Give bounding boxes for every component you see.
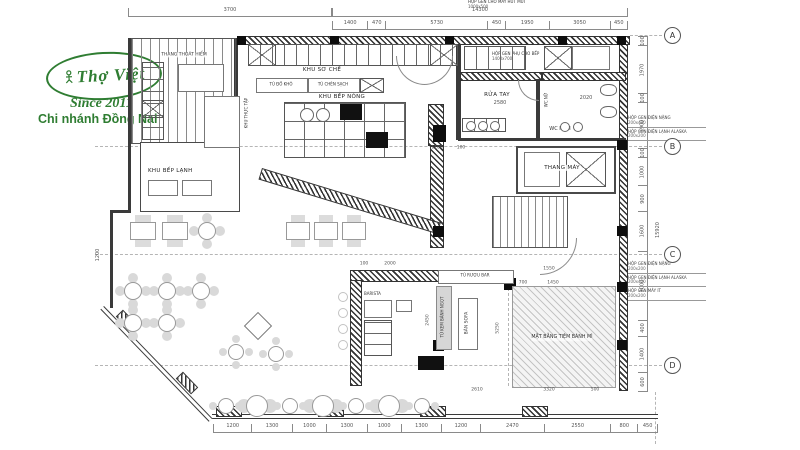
dim-left-side: 1200	[96, 249, 102, 262]
cold-equipment	[182, 180, 212, 196]
grid-bubble-c: C	[664, 246, 681, 263]
dim-top-segments: 1400470573045019503050450	[332, 21, 628, 30]
range-unit	[366, 132, 388, 148]
logo-since: Since 2011	[70, 96, 133, 112]
sink	[466, 121, 476, 131]
dry-cabinet-label: TỦ ĐỒ KHÔ	[270, 83, 293, 88]
dining-table-square	[130, 222, 156, 240]
wine-cabinet-label: TỦ RƯỢU BAR	[461, 274, 490, 279]
escape-stairs-label: THANG THOÁT HIỂM	[161, 52, 206, 57]
sofa-table-label: BÀN SOFA	[464, 312, 469, 335]
dining-table-round	[192, 282, 210, 300]
floorplan-canvas: Thợ Việt Since 2011 Chi nhánh Đồng Nai A…	[0, 0, 800, 450]
dining-table-round	[378, 395, 400, 417]
cabinet-unit	[360, 78, 384, 93]
work-table	[204, 96, 240, 148]
cold-equipment	[148, 180, 178, 196]
dim-segment: 450	[610, 21, 629, 30]
dining-table-round	[282, 398, 298, 414]
handyman-icon	[62, 68, 75, 88]
dining-table-diamond	[244, 312, 272, 340]
banh-mi-label: MẶT BẰNG TIỆM BÁNH MÌ	[531, 335, 592, 341]
handwash-label: RỬA TAY	[484, 92, 510, 98]
toilet	[600, 106, 617, 118]
dim-segment: 400	[638, 320, 647, 335]
door-arc	[424, 56, 453, 85]
dim-1450: 1450	[547, 280, 558, 285]
dim-wc: 2020	[580, 96, 593, 102]
service-counter	[572, 46, 610, 70]
dining-table-square	[286, 222, 310, 240]
column	[433, 226, 444, 237]
bar-unit	[396, 300, 412, 312]
training-area-label: KHU THỰC TẬP	[245, 98, 250, 128]
dim-segment: 1200	[441, 424, 479, 433]
column	[558, 36, 567, 45]
dim-segment: 3700	[128, 8, 332, 17]
bar-stool	[338, 340, 348, 350]
dim-segment: 470	[367, 21, 385, 30]
dining-table-round	[158, 282, 176, 300]
dim-segment: 5730	[385, 21, 487, 30]
wall-right	[619, 44, 628, 391]
hood-unit	[544, 46, 572, 70]
dim-segment: 1300	[251, 424, 291, 433]
cold-kitchen-room	[140, 142, 240, 212]
dim-segment: 1300	[326, 424, 366, 433]
annotation-group-c: HỘP GEN ĐIỆN NẶNG 200x200 HỘP GEN ĐIỆN L…	[628, 262, 706, 303]
dim-segment: 1970	[638, 45, 647, 93]
urinal	[560, 122, 570, 132]
dim-right-overall: 15920	[656, 222, 662, 238]
dim-segment: 1000	[638, 157, 647, 185]
dim-2450: 2450	[425, 314, 430, 325]
elevator-label: THANG MÁY	[544, 165, 580, 171]
cold-kitchen-label: KHU BẾP LẠNH	[148, 168, 193, 174]
dim-segment: 1200	[213, 424, 251, 433]
urinal	[573, 122, 583, 132]
wall-left-joint	[110, 210, 131, 213]
dining-table-square	[162, 222, 188, 240]
dim-ruatay: 2580	[494, 101, 507, 107]
column	[433, 125, 446, 142]
door-arc	[396, 56, 425, 85]
wall-diagonal	[100, 306, 212, 422]
dining-table-round	[198, 222, 216, 240]
column	[617, 36, 626, 45]
boundary-dash-1	[508, 278, 509, 386]
grid-bubble-a: A	[664, 27, 681, 44]
bar-wall-top	[350, 270, 440, 282]
dim-1550: 1550	[543, 266, 554, 271]
dim-segment: 1000	[367, 424, 401, 433]
dim-500: 500	[591, 387, 600, 392]
dining-table-round	[158, 314, 176, 332]
dim-segment: 2470	[480, 424, 544, 433]
column	[617, 226, 627, 236]
dining-table-round	[228, 344, 244, 360]
dim-100: 100	[457, 145, 466, 150]
wall-service-bottom	[458, 138, 626, 141]
gen-label: HỘP GEN ĐIỆN NẶNG 200x400	[628, 116, 706, 128]
dining-table-round	[348, 398, 364, 414]
dim-right-segments: 1001970100190010010009001600300040014006…	[638, 36, 648, 392]
dim-1100: 1100	[431, 145, 442, 150]
dim-segment: 1300	[401, 424, 441, 433]
clean-dish-cabinet-label: TỦ CHÉN SẠCH	[318, 83, 348, 88]
dim-segment: 100	[638, 93, 647, 102]
dim-bottom-segments: 1200130010001300100013001200247025508004…	[213, 424, 658, 433]
dining-table-square	[314, 222, 338, 240]
dim-bar-2000: 2000	[384, 261, 395, 266]
grid-bubble-d: D	[664, 357, 681, 374]
annotation-hut-mui: HỘP GEN CHO MÁY HÚT MÙI 1000x500	[468, 0, 525, 9]
dining-table-round	[246, 395, 268, 417]
bar-equipment	[364, 320, 392, 356]
gen-label: HỘP GEN MÁY IT 200x200	[628, 289, 706, 301]
dim-top-overall-left: 3700	[128, 8, 332, 17]
bar-wall-left	[350, 280, 362, 386]
dining-table-round	[124, 314, 142, 332]
dining-table-round	[414, 398, 430, 414]
prep-area-label: KHU SƠ CHẾ	[303, 67, 341, 73]
wc-nu-label: WC NỮ	[545, 93, 550, 107]
storage-table	[178, 64, 224, 92]
counter-unit	[248, 44, 276, 66]
dining-table-square	[342, 222, 366, 240]
dining-table-round	[312, 395, 334, 417]
dim-segment: 1400	[332, 21, 367, 30]
column	[617, 282, 627, 292]
column	[617, 140, 627, 150]
bar-stool	[338, 324, 348, 334]
sink-unit	[142, 100, 164, 118]
burner	[300, 108, 314, 122]
wall-left-lower	[110, 210, 113, 308]
bar-stool	[338, 292, 348, 302]
dim-segment: 600	[638, 372, 647, 392]
dim-segment: 1000	[292, 424, 326, 433]
hot-kitchen-label: KHU BẾP NÓNG	[319, 94, 365, 100]
sink	[490, 121, 500, 131]
door-arc-wc	[518, 80, 539, 101]
grid-bubble-b: B	[664, 138, 681, 155]
coffee-machine	[364, 300, 392, 318]
dining-table-round	[218, 398, 234, 414]
dim-bar-100: 100	[360, 261, 369, 266]
dessert-fridge-label: TỦ KEM BÁNH NGỌT	[441, 297, 446, 338]
dim-segment: 100	[638, 36, 647, 45]
bar-black-unit	[418, 356, 444, 370]
burner	[316, 108, 330, 122]
dim-segment: 100	[638, 148, 647, 157]
dim-segment: 1950	[505, 21, 549, 30]
toilet	[600, 84, 617, 96]
planter	[522, 406, 548, 417]
dim-segment: 2550	[544, 424, 610, 433]
barista-label: BARISTA	[364, 292, 381, 297]
dim-segment: 900	[638, 185, 647, 211]
dim-segment: 1400	[638, 336, 647, 372]
dim-segment: 800	[610, 424, 637, 433]
dim-segment: 450	[637, 424, 658, 433]
dim-700: 700	[519, 280, 528, 285]
dim-segment: 14300	[332, 8, 628, 17]
gen-label: HỘP GEN ĐIỆN NẶNG 200x200	[628, 262, 706, 274]
dim-segment: 450	[487, 21, 505, 30]
dim-3320: 3320	[543, 387, 554, 392]
dim-2610: 2610	[471, 387, 482, 392]
column	[237, 36, 246, 45]
dim-top-overall-right: 14300	[332, 8, 628, 17]
column	[617, 340, 627, 350]
wall-left-upper	[128, 142, 131, 212]
gridline-c	[95, 254, 662, 255]
dining-table-round	[124, 282, 142, 300]
range-unit	[340, 104, 362, 120]
wall-wc-top	[542, 72, 626, 81]
bar-stool	[338, 308, 348, 318]
dim-segment: 3050	[549, 21, 610, 30]
fridge-bank	[464, 46, 526, 70]
dim-5250: 5250	[495, 322, 500, 333]
sink	[478, 121, 488, 131]
dining-table-round	[268, 346, 284, 362]
gen-label: HỘP GEN ĐIỆN LẠNH ALASKA 200x400	[628, 276, 706, 288]
dim-segment: 1600	[638, 211, 647, 251]
